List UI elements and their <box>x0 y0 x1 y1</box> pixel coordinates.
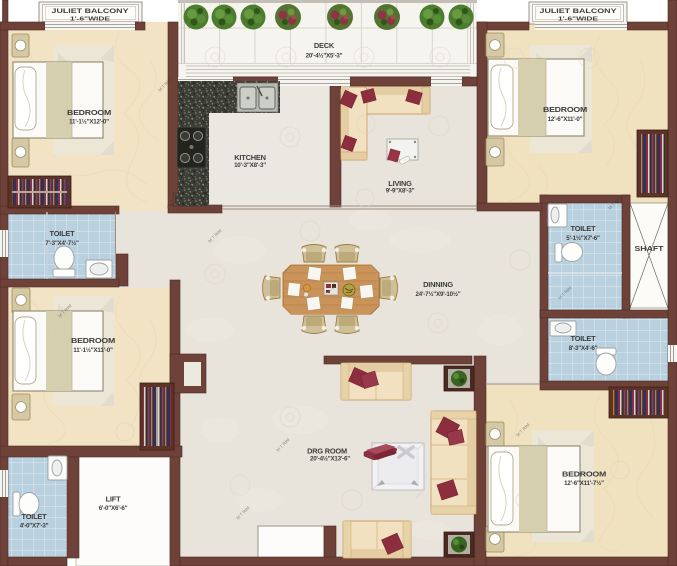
svg-text:SHAFT: SHAFT <box>635 246 665 253</box>
svg-text:8'-3"X4'-6": 8'-3"X4'-6" <box>569 345 598 352</box>
svg-text:6'-0"X6'-6": 6'-0"X6'-6" <box>99 505 128 512</box>
svg-text:BEDROOM: BEDROOM <box>71 336 115 345</box>
svg-text:DINNING: DINNING <box>423 280 453 289</box>
svg-text:LIFT: LIFT <box>106 495 121 504</box>
svg-text:7'-3"X4'-7½": 7'-3"X4'-7½" <box>45 240 79 247</box>
svg-text:1'-6"WIDE: 1'-6"WIDE <box>558 17 598 23</box>
svg-text:BEDROOM: BEDROOM <box>562 470 606 479</box>
svg-text:DRG ROOM: DRG ROOM <box>307 447 347 456</box>
svg-text:12'-6"X11'-0": 12'-6"X11'-0" <box>548 116 583 123</box>
svg-text:TOILET: TOILET <box>571 224 597 233</box>
svg-text:5'-1½"X7'-6": 5'-1½"X7'-6" <box>566 235 600 242</box>
svg-text:KITCHEN: KITCHEN <box>234 153 265 162</box>
svg-text:TOILET: TOILET <box>22 512 48 521</box>
svg-text:20'-4½"X5'-3": 20'-4½"X5'-3" <box>306 53 343 60</box>
svg-text:12'-6"X11'-7½": 12'-6"X11'-7½" <box>564 480 604 487</box>
svg-text:4'-0"X7'-3": 4'-0"X7'-3" <box>20 523 49 530</box>
svg-text:JULIET BALCONY: JULIET BALCONY <box>52 8 130 15</box>
svg-text:24'-7½"X9'-10½": 24'-7½"X9'-10½" <box>415 291 460 298</box>
svg-text:JULIET BALCONY: JULIET BALCONY <box>540 8 618 15</box>
svg-text:TOILET: TOILET <box>50 229 76 238</box>
svg-text:10'-3"X8'-3": 10'-3"X8'-3" <box>234 162 266 169</box>
svg-text:9'-9"X8'-3": 9'-9"X8'-3" <box>386 188 415 195</box>
svg-text:DECK: DECK <box>314 41 335 50</box>
svg-text:11'-1½"X12'-0": 11'-1½"X12'-0" <box>69 119 109 126</box>
svg-text:BEDROOM: BEDROOM <box>543 105 587 114</box>
svg-text:1'-6"WIDE: 1'-6"WIDE <box>70 17 110 23</box>
svg-text:20'-4½"X13'-6": 20'-4½"X13'-6" <box>310 456 350 463</box>
svg-text:BEDROOM: BEDROOM <box>67 108 111 117</box>
svg-text:TOILET: TOILET <box>571 334 597 343</box>
svg-text:11'-1½"X11'-0": 11'-1½"X11'-0" <box>73 347 113 354</box>
